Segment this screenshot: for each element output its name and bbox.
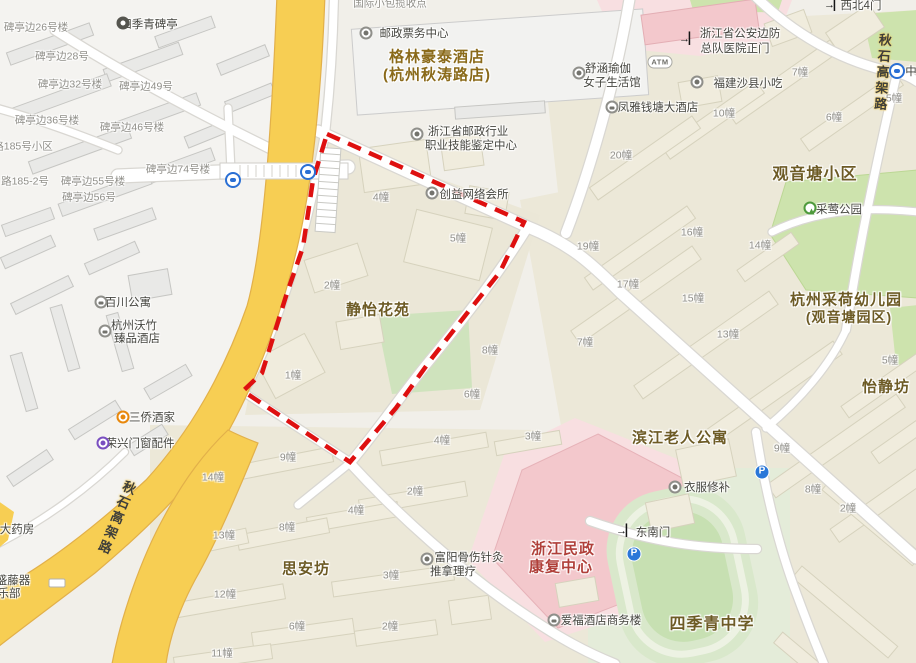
poi-label[interactable]: 采莺公园 (816, 201, 862, 217)
poi-label[interactable]: 创益网络会所 (440, 186, 509, 202)
poi-label[interactable]: 三侨酒家 (129, 409, 175, 425)
poi-label[interactable]: 总队医院正门 (701, 40, 770, 56)
map-labels-layer: 碑亭边26号楼碑亭边28号碑亭边32号楼碑亭边49号碑亭边36号楼碑亭边46号楼… (0, 0, 916, 663)
poi-label[interactable]: 爱福酒店商务楼 (561, 612, 642, 628)
building-label: 碑亭边28号 (35, 49, 89, 64)
building-label: 2幢 (407, 484, 423, 499)
gate-icon[interactable] (616, 525, 634, 537)
poi-icon[interactable] (411, 128, 424, 141)
building-label: 碑亭边46号楼 (100, 120, 164, 135)
building-label: 2幢 (840, 501, 856, 516)
building-label: 碑亭边36号楼 (15, 113, 79, 128)
hotel-icon[interactable] (95, 296, 108, 309)
poi-label[interactable]: 东南门 (636, 524, 671, 540)
poi-label[interactable]: 西北4门 (841, 0, 882, 13)
building-label: 碑亭边74号楼 (146, 162, 210, 177)
building-label: 国际小包揽收点 (353, 0, 427, 11)
poi-label[interactable]: 职业技能鉴定中心 (425, 137, 517, 153)
area-label: 四季青中学 (669, 610, 754, 634)
road-label: 秋石高架路 (92, 477, 140, 558)
area-label: (观音塘园区) (806, 307, 892, 327)
building-label: 6幢 (826, 110, 842, 125)
building-label: 4幢 (434, 433, 450, 448)
gate-icon[interactable] (824, 0, 842, 11)
parking-icon[interactable]: P (627, 547, 642, 562)
poi-icon[interactable] (421, 553, 434, 566)
building-label: 16幢 (681, 225, 703, 240)
poi-label[interactable]: 大药房 (0, 521, 34, 537)
area-label: 怡静坊 (862, 376, 910, 397)
hotel-icon[interactable] (548, 614, 561, 627)
building-label: 8幢 (482, 343, 498, 358)
building-label: 1幢 (285, 368, 301, 383)
poi-icon[interactable] (669, 481, 682, 494)
building-label: 10幢 (713, 106, 735, 121)
building-label: 碑亭边56号 (62, 190, 116, 205)
parking-icon[interactable]: P (755, 465, 770, 480)
poi-icon[interactable] (360, 27, 373, 40)
building-label: 2幢 (382, 619, 398, 634)
building-label: 6幢 (289, 619, 305, 634)
building-label: 5幢 (882, 353, 898, 368)
building-label: 3幢 (383, 568, 399, 583)
building-label: 9幢 (280, 450, 296, 465)
building-label: 20幢 (610, 148, 632, 163)
building-label: 路185号小区 (0, 139, 53, 154)
building-label: 3幢 (525, 429, 541, 444)
atm-icon: ATM (648, 56, 673, 69)
poi-label[interactable]: 百川公寓 (105, 294, 151, 310)
area-label: 滨江老人公寓 (632, 427, 728, 448)
building-label: 7幢 (792, 65, 808, 80)
building-label: 9幢 (774, 441, 790, 456)
map-canvas[interactable]: 碑亭边26号楼碑亭边28号碑亭边32号楼碑亭边49号碑亭边36号楼碑亭边46号楼… (0, 0, 916, 663)
poi-icon[interactable] (117, 17, 130, 30)
area-label: 康复中心 (529, 556, 593, 577)
building-label: 2幢 (324, 278, 340, 293)
building-label: 5幢 (450, 231, 466, 246)
poi-label[interactable]: 乐部 (0, 585, 21, 601)
hotel-icon[interactable] (99, 325, 112, 338)
building-label: 12幢 (214, 587, 236, 602)
building-label: 碑亭边26号楼 (4, 20, 68, 35)
area-label: 观音塘小区 (772, 160, 857, 184)
building-label: 11幢 (211, 646, 232, 661)
poi-label[interactable]: 荣兴门窗配件 (106, 435, 175, 451)
building-label: 14幢 (749, 238, 771, 253)
poi-icon[interactable] (691, 76, 704, 89)
building-label: 7幢 (577, 335, 593, 350)
poi-label[interactable]: 推拿理疗 (430, 563, 476, 579)
poi-label[interactable]: 凤雅钱塘大酒店 (618, 99, 699, 115)
bus-icon[interactable] (300, 164, 316, 180)
building-label: 8幢 (279, 520, 295, 535)
poi-label[interactable]: 福建沙县小吃 (714, 75, 783, 91)
roadbadge-icon (49, 579, 66, 588)
poi-label[interactable]: 臻品酒店 (114, 330, 160, 346)
building-label: 13幢 (717, 327, 739, 342)
building-label: 17幢 (617, 277, 639, 292)
poi-label[interactable]: 中 (905, 63, 916, 79)
building-label: 4幢 (373, 190, 389, 205)
building-label: 19幢 (577, 239, 599, 254)
poi-label[interactable]: 浙江省公安边防 (700, 25, 781, 41)
building-label: 碑亭边32号楼 (38, 77, 102, 92)
building-label: 14幢 (202, 470, 224, 485)
building-label: 路185-2号 (1, 174, 49, 189)
poi-icon[interactable] (573, 67, 586, 80)
building-label: 6幢 (464, 387, 480, 402)
park-icon[interactable] (804, 202, 817, 215)
gate-icon[interactable] (679, 33, 697, 45)
building-label: 4幢 (348, 503, 364, 518)
poi-icon[interactable] (117, 411, 130, 424)
metro-icon[interactable] (889, 63, 905, 79)
hotel-icon[interactable] (606, 101, 619, 114)
poi-icon[interactable] (97, 437, 110, 450)
building-label: 碑亭边49号 (119, 79, 173, 94)
poi-icon[interactable] (426, 187, 439, 200)
bus-icon[interactable] (225, 172, 241, 188)
area-label: (杭州秋涛路店) (383, 64, 491, 85)
poi-label[interactable]: 邮政票务中心 (380, 25, 449, 41)
building-label: 13幢 (213, 528, 235, 543)
poi-label[interactable]: 衣服修补 (684, 479, 730, 495)
area-label: 静怡花苑 (346, 299, 410, 320)
building-label: 碑亭边55号楼 (61, 174, 125, 189)
poi-label[interactable]: 女子生活馆 (583, 74, 641, 90)
building-label: 15幢 (682, 291, 704, 306)
area-label: 思安坊 (282, 558, 330, 579)
building-label: 8幢 (805, 482, 821, 497)
